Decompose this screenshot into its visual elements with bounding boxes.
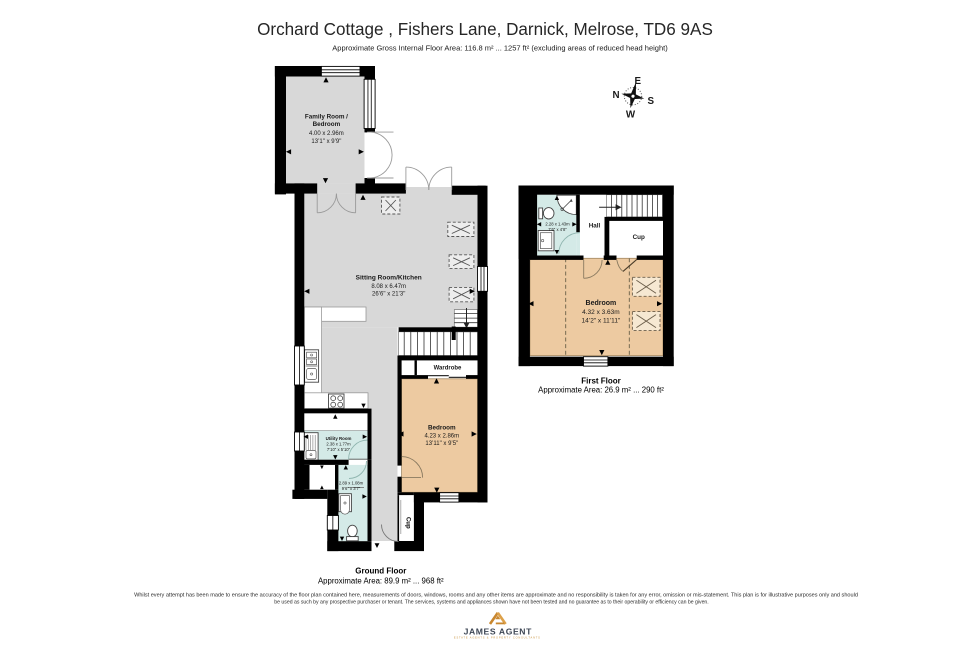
svg-text:Bedroom: Bedroom xyxy=(428,425,456,432)
svg-text:14’2" x 11’11": 14’2" x 11’11" xyxy=(582,318,621,325)
svg-text:9’6" x 3’7": 9’6" x 3’7" xyxy=(342,486,361,491)
svg-text:Bedroom: Bedroom xyxy=(586,300,617,307)
svg-text:Approximate Area: 89.9 m² ...: Approximate Area: 89.9 m² ... 968 ft² xyxy=(318,577,444,586)
svg-text:ESTATE AGENTS & PROPERTY CONSU: ESTATE AGENTS & PROPERTY CONSULTANTS xyxy=(454,636,541,640)
svg-text:Family Room /: Family Room / xyxy=(305,114,348,121)
svg-text:Cup: Cup xyxy=(405,517,411,529)
svg-text:Approximate Gross Internal Flo: Approximate Gross Internal Floor Area: 1… xyxy=(332,44,668,53)
svg-text:Whilst every attempt has been: Whilst every attempt has been made to en… xyxy=(134,593,858,599)
svg-text:13’11" x 9’5": 13’11" x 9’5" xyxy=(425,441,458,447)
svg-text:Approximate Area: 26.9 m² ...: Approximate Area: 26.9 m² ... 290 ft² xyxy=(538,386,664,395)
svg-text:be used as such by any prospec: be used as such by any prospective purch… xyxy=(274,600,708,606)
svg-text:Utility Room: Utility Room xyxy=(326,436,352,441)
svg-text:N: N xyxy=(612,90,619,101)
svg-text:4.00 x 2.96m: 4.00 x 2.96m xyxy=(309,131,344,137)
svg-text:JAMES AGENT: JAMES AGENT xyxy=(464,627,533,637)
svg-text:2.28 x 1.43m: 2.28 x 1.43m xyxy=(545,222,570,227)
svg-text:8.08 x 6.47m: 8.08 x 6.47m xyxy=(371,284,406,290)
svg-text:7’6" x 4’8": 7’6" x 4’8" xyxy=(548,227,567,232)
svg-text:2.89 x 1.08m: 2.89 x 1.08m xyxy=(339,481,364,486)
svg-text:Cup: Cup xyxy=(633,234,645,241)
svg-text:E: E xyxy=(635,76,642,87)
svg-text:26’6" x 21’3": 26’6" x 21’3" xyxy=(372,291,405,297)
svg-text:S: S xyxy=(648,96,655,107)
svg-text:Orchard Cottage , Fishers Lane: Orchard Cottage , Fishers Lane, Darnick,… xyxy=(257,20,713,39)
svg-text:13’1" x 9’9": 13’1" x 9’9" xyxy=(311,139,341,145)
svg-text:Sitting Room/Kitchen: Sitting Room/Kitchen xyxy=(356,275,422,282)
svg-text:Wardrobe: Wardrobe xyxy=(434,365,462,371)
svg-text:4.32 x 3.63m: 4.32 x 3.63m xyxy=(582,309,620,316)
svg-text:Hall: Hall xyxy=(589,223,601,230)
svg-text:7’10" x 5’10": 7’10" x 5’10" xyxy=(327,447,351,452)
svg-text:First Floor: First Floor xyxy=(581,376,621,385)
svg-text:Bedroom: Bedroom xyxy=(313,121,341,128)
svg-text:2.38 x 1.77m: 2.38 x 1.77m xyxy=(326,442,351,447)
svg-text:Ground Floor: Ground Floor xyxy=(355,567,406,576)
svg-text:4.23 x 2.86m: 4.23 x 2.86m xyxy=(424,434,459,440)
svg-text:W: W xyxy=(626,109,636,120)
